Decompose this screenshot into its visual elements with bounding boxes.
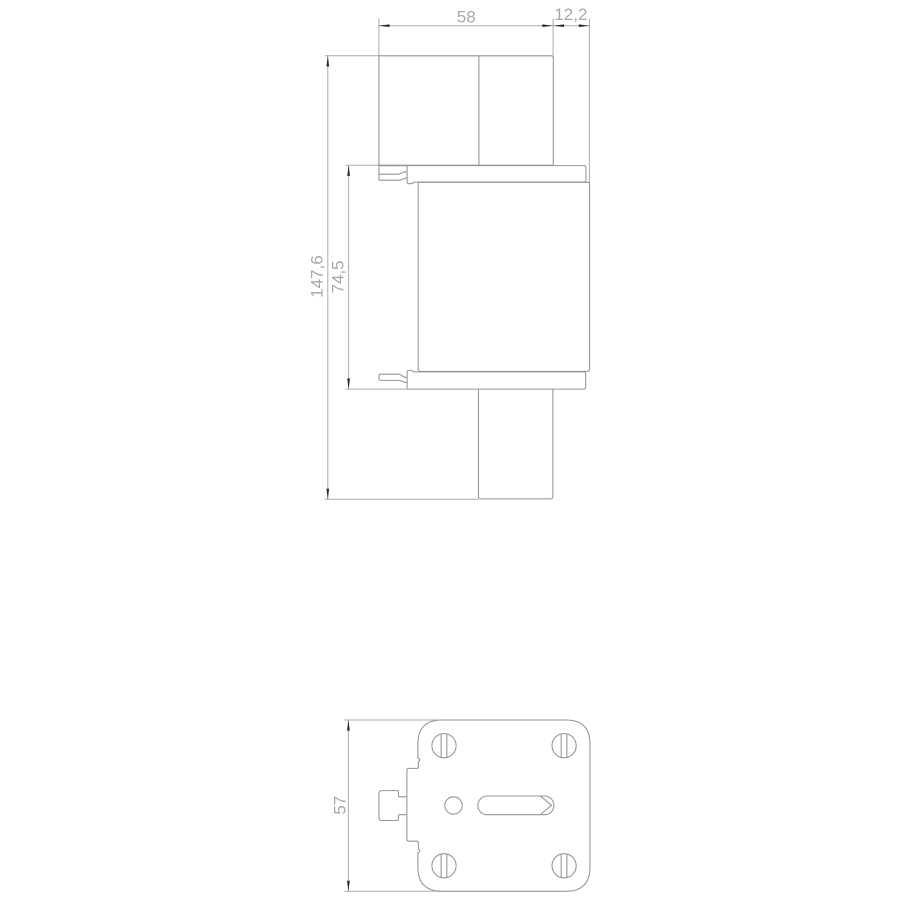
svg-text:58: 58 — [457, 7, 476, 26]
svg-text:57: 57 — [331, 796, 350, 815]
svg-text:12,2: 12,2 — [554, 5, 587, 24]
svg-text:147,6: 147,6 — [308, 255, 327, 298]
svg-text:74,5: 74,5 — [329, 260, 348, 293]
